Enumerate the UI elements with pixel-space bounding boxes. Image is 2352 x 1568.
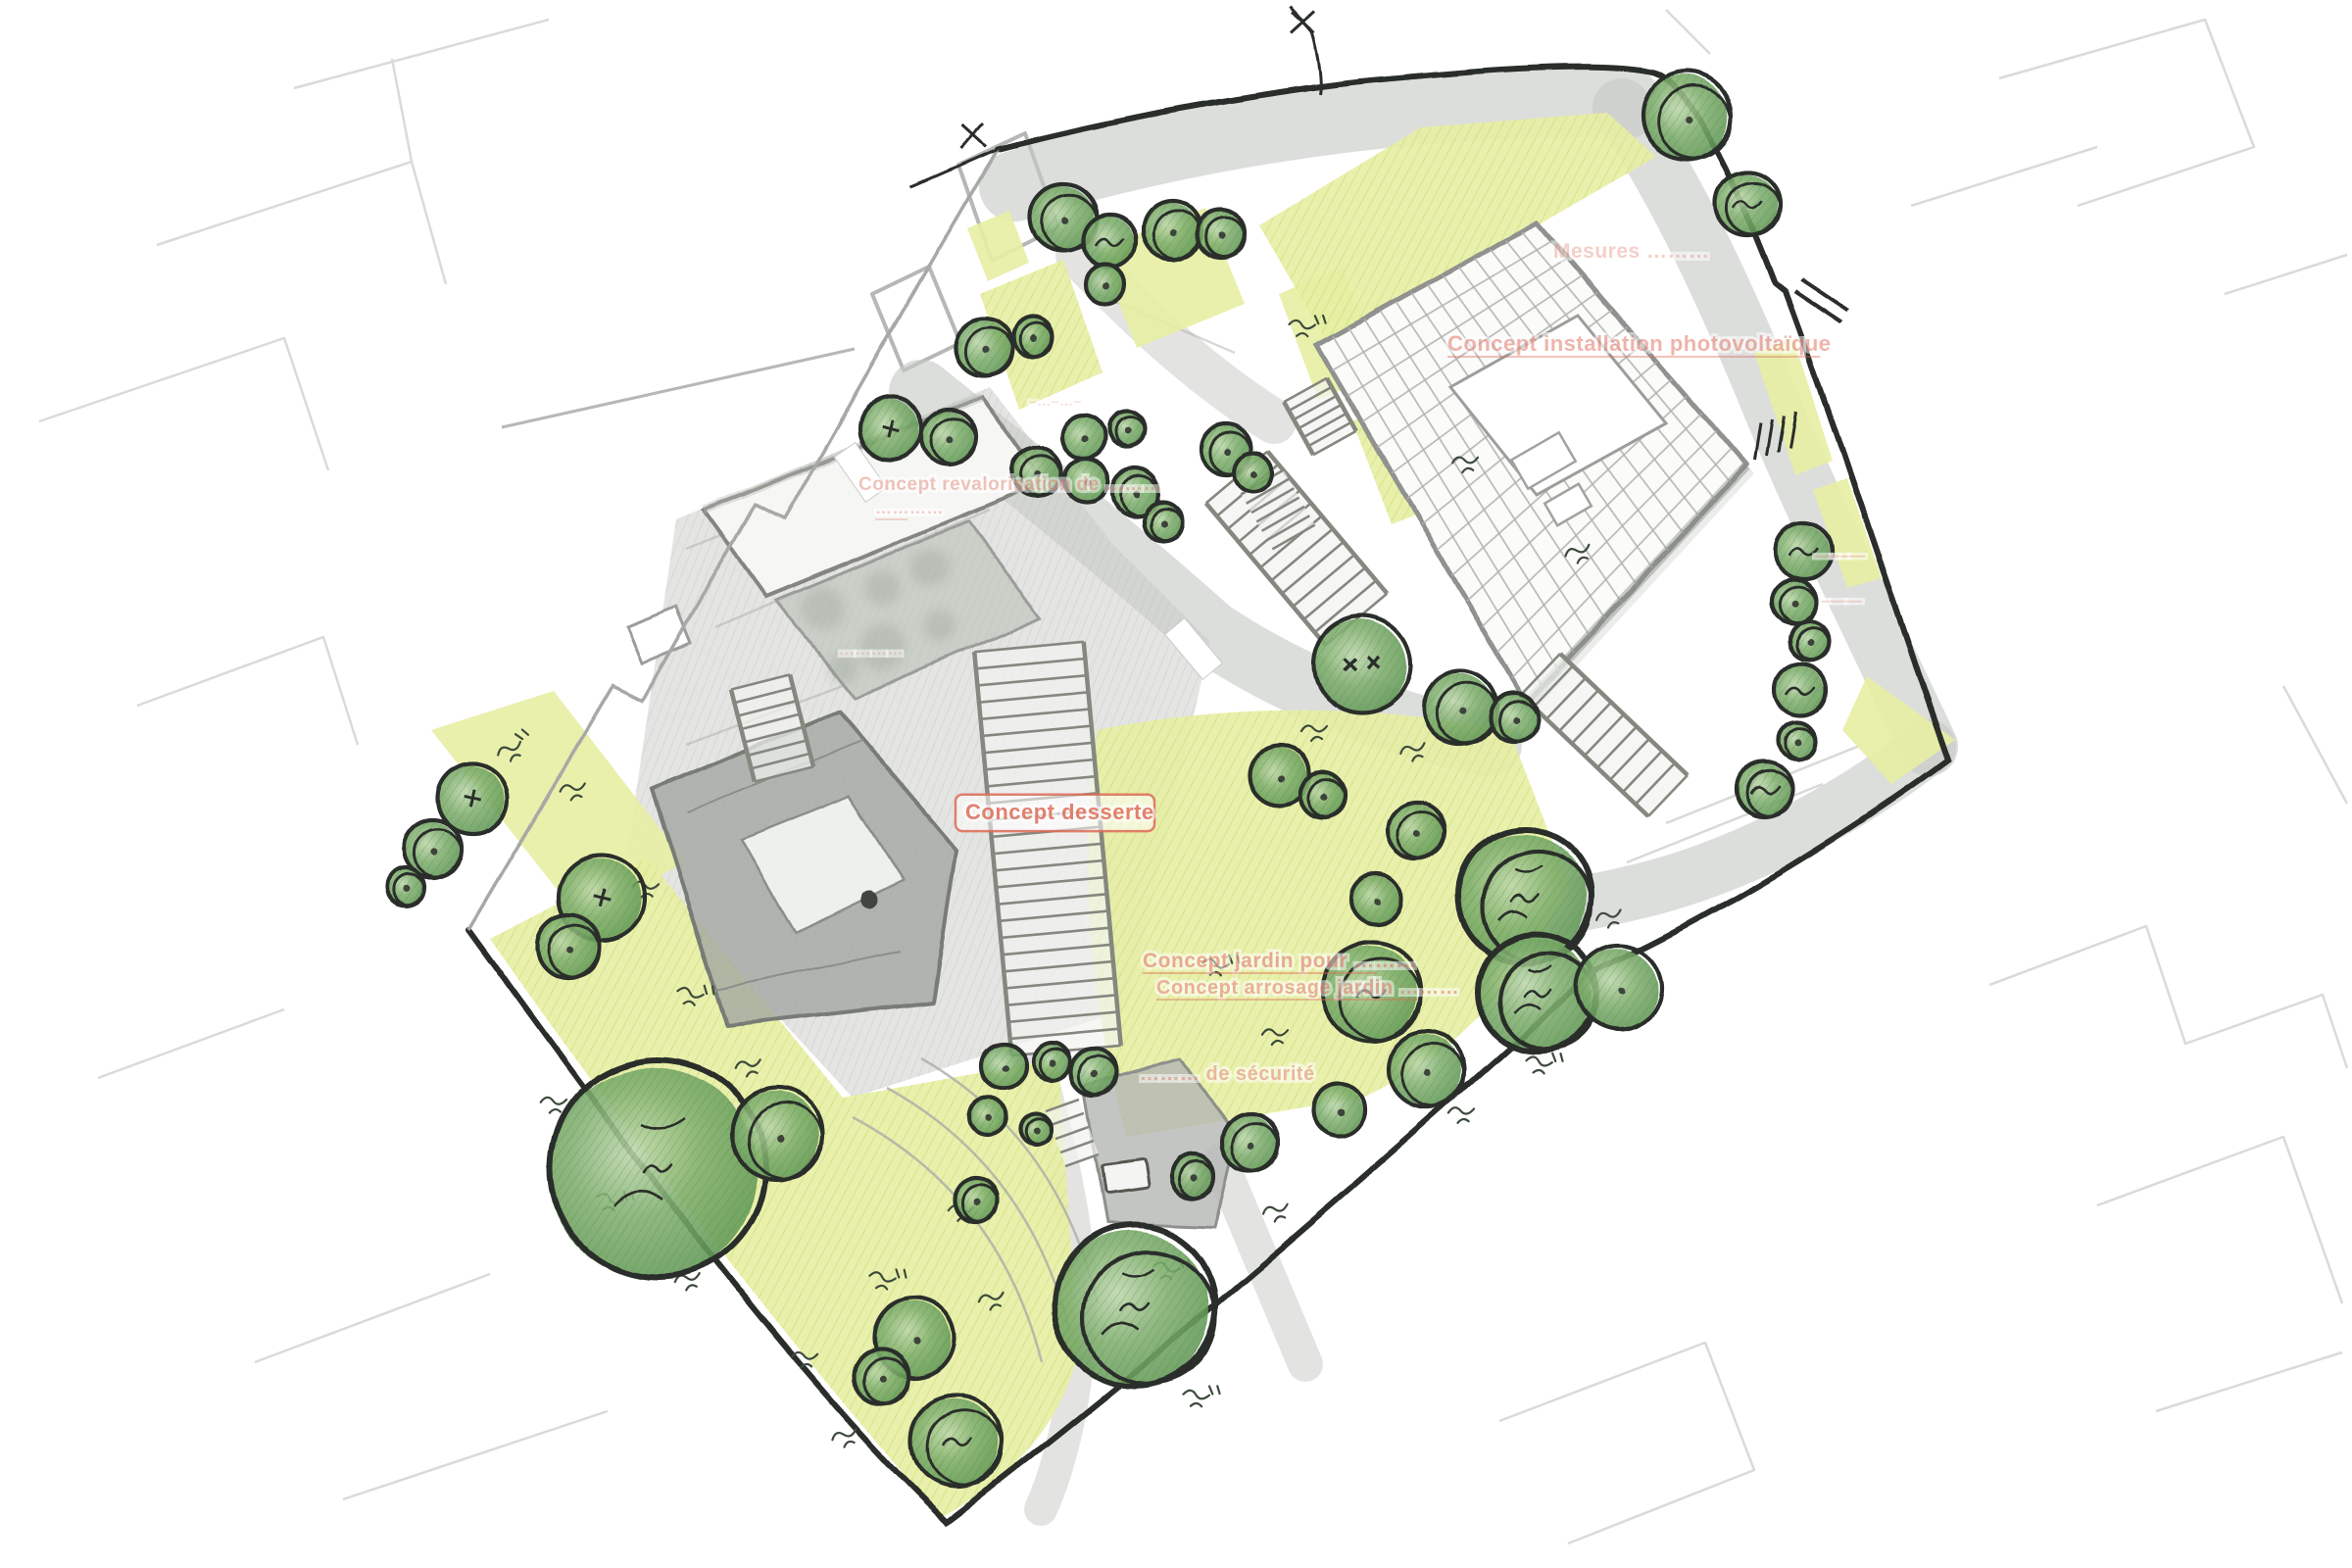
tree bbox=[1071, 1050, 1116, 1095]
annotation-trace-droite-2: –—— bbox=[1821, 593, 1862, 610]
tree bbox=[1086, 265, 1125, 304]
tree bbox=[1082, 215, 1136, 268]
annotation-trace-cour: ………… bbox=[839, 642, 904, 659]
svg-text:…………: ………… bbox=[875, 499, 944, 517]
tree bbox=[1053, 1225, 1215, 1387]
tree bbox=[1779, 722, 1816, 759]
tree bbox=[387, 868, 424, 906]
site-plan-sketch: Mesures ………Concept installation photovol… bbox=[0, 0, 2352, 1568]
bench bbox=[1102, 1158, 1149, 1194]
svg-text:Concept installation photovolt: Concept installation photovoltaïque bbox=[1447, 331, 1832, 356]
tree bbox=[1423, 671, 1496, 744]
tree bbox=[1109, 412, 1145, 447]
site-plan-canvas: Mesures ………Concept installation photovol… bbox=[0, 0, 2352, 1568]
tree bbox=[969, 1098, 1006, 1135]
shrub-mark bbox=[1448, 1107, 1475, 1123]
tree bbox=[1013, 318, 1053, 357]
svg-text:……… de sécurité: ……… de sécurité bbox=[1140, 1063, 1315, 1085]
pool-dot bbox=[860, 891, 878, 908]
tree bbox=[731, 1089, 822, 1179]
tree bbox=[1221, 1114, 1279, 1171]
svg-text:Concept revalorisation de ………: Concept revalorisation de ……… bbox=[858, 474, 1162, 495]
tree bbox=[1575, 945, 1662, 1031]
tree bbox=[536, 915, 600, 978]
annotation-arrosage: Concept arrosage jardin ……… bbox=[1156, 977, 1459, 1000]
tree bbox=[1775, 664, 1827, 715]
tree bbox=[981, 1044, 1026, 1089]
tree bbox=[1771, 579, 1816, 624]
svg-text:Concept arrosage jardin ………: Concept arrosage jardin ……… bbox=[1156, 977, 1459, 999]
tree bbox=[1388, 1032, 1465, 1108]
tree bbox=[1142, 200, 1201, 259]
annotation-installation-photovoltaique: Concept installation photovoltaïque bbox=[1447, 331, 1832, 357]
tree bbox=[1312, 1084, 1364, 1135]
annotation-desserte: Concept desserte bbox=[955, 795, 1154, 831]
tree bbox=[853, 1349, 908, 1404]
tree bbox=[1312, 615, 1411, 714]
tree bbox=[1020, 1113, 1052, 1145]
tree bbox=[910, 1396, 1002, 1486]
tree bbox=[858, 397, 922, 460]
annotation-revalorisation: Concept revalorisation de ……… bbox=[858, 474, 1162, 495]
shrub-mark bbox=[1262, 1203, 1290, 1223]
annotation-trace-allee: –…–…– bbox=[1029, 393, 1082, 409]
double-band bbox=[1795, 280, 1848, 323]
tree bbox=[955, 318, 1012, 375]
survey-cross-2 bbox=[1292, 12, 1315, 33]
svg-text:…………: ………… bbox=[839, 642, 904, 659]
tree bbox=[1641, 72, 1731, 160]
annotation-mesures: Mesures ……… bbox=[1553, 240, 1710, 263]
annotation-trace-droite-1: —––— bbox=[1815, 548, 1866, 564]
pencil-neighbour-parcels bbox=[502, 133, 1058, 427]
tree bbox=[1349, 874, 1401, 925]
annotation-revalorisation-2: ………… bbox=[875, 499, 944, 519]
tree bbox=[548, 1060, 765, 1277]
tree bbox=[1171, 1154, 1214, 1198]
svg-text:Concept jardin pour ………: Concept jardin pour ……… bbox=[1143, 950, 1417, 972]
annotation-securite: ……… de sécurité bbox=[1140, 1063, 1315, 1085]
tree bbox=[1300, 773, 1346, 818]
tree bbox=[954, 1179, 997, 1222]
svg-text:–…–…–: –…–…– bbox=[1029, 393, 1082, 409]
tree bbox=[1715, 171, 1781, 236]
tree bbox=[921, 410, 977, 465]
survey-cross-1 bbox=[960, 123, 986, 149]
tree bbox=[1062, 416, 1105, 459]
shrub-mark bbox=[1181, 1379, 1221, 1411]
tree bbox=[1736, 762, 1791, 817]
tree bbox=[1033, 1043, 1070, 1080]
tree bbox=[1388, 803, 1445, 859]
tree bbox=[1198, 210, 1245, 257]
stair-ladder bbox=[1521, 654, 1688, 816]
tree bbox=[1789, 621, 1829, 661]
annotation-jardin: Concept jardin pour ……… bbox=[1143, 950, 1417, 973]
svg-text:Mesures ………: Mesures ……… bbox=[1553, 240, 1710, 263]
svg-text:Concept desserte: Concept desserte bbox=[965, 800, 1154, 824]
tree bbox=[1143, 502, 1182, 541]
tree bbox=[1235, 453, 1274, 492]
tree bbox=[1490, 693, 1540, 742]
svg-text:—––—: —––— bbox=[1815, 548, 1866, 564]
shrub-mark bbox=[831, 1429, 859, 1449]
svg-text:–——: –—— bbox=[1821, 593, 1862, 610]
